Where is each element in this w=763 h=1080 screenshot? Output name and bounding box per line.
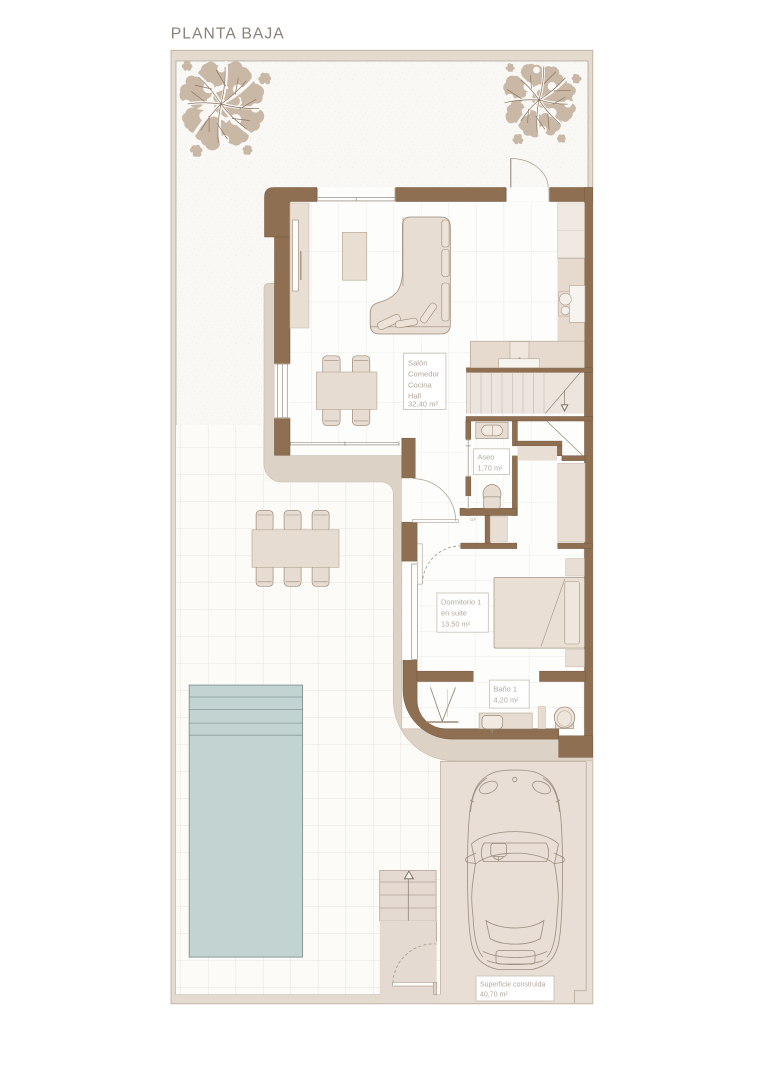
svg-text:1,70 m²: 1,70 m² bbox=[478, 464, 504, 473]
svg-text:Dormitorio 1: Dormitorio 1 bbox=[441, 598, 481, 607]
svg-text:Aseo: Aseo bbox=[478, 453, 495, 462]
svg-text:Comedor: Comedor bbox=[408, 370, 440, 379]
svg-text:Baño 1: Baño 1 bbox=[494, 685, 517, 694]
svg-text:32,40 m²: 32,40 m² bbox=[408, 400, 438, 409]
svg-text:13,50 m²: 13,50 m² bbox=[441, 620, 471, 629]
svg-text:4,20 m²: 4,20 m² bbox=[494, 696, 520, 705]
svg-text:Cocina: Cocina bbox=[408, 381, 432, 390]
svg-text:Salón: Salón bbox=[408, 359, 427, 368]
svg-text:40,70 m²: 40,70 m² bbox=[480, 992, 508, 999]
svg-text:GF: GF bbox=[470, 517, 477, 522]
svg-text:PLANTA BAJA: PLANTA BAJA bbox=[171, 26, 285, 43]
svg-text:Superficie construida: Superficie construida bbox=[480, 982, 545, 989]
svg-text:en suite: en suite bbox=[441, 609, 467, 618]
